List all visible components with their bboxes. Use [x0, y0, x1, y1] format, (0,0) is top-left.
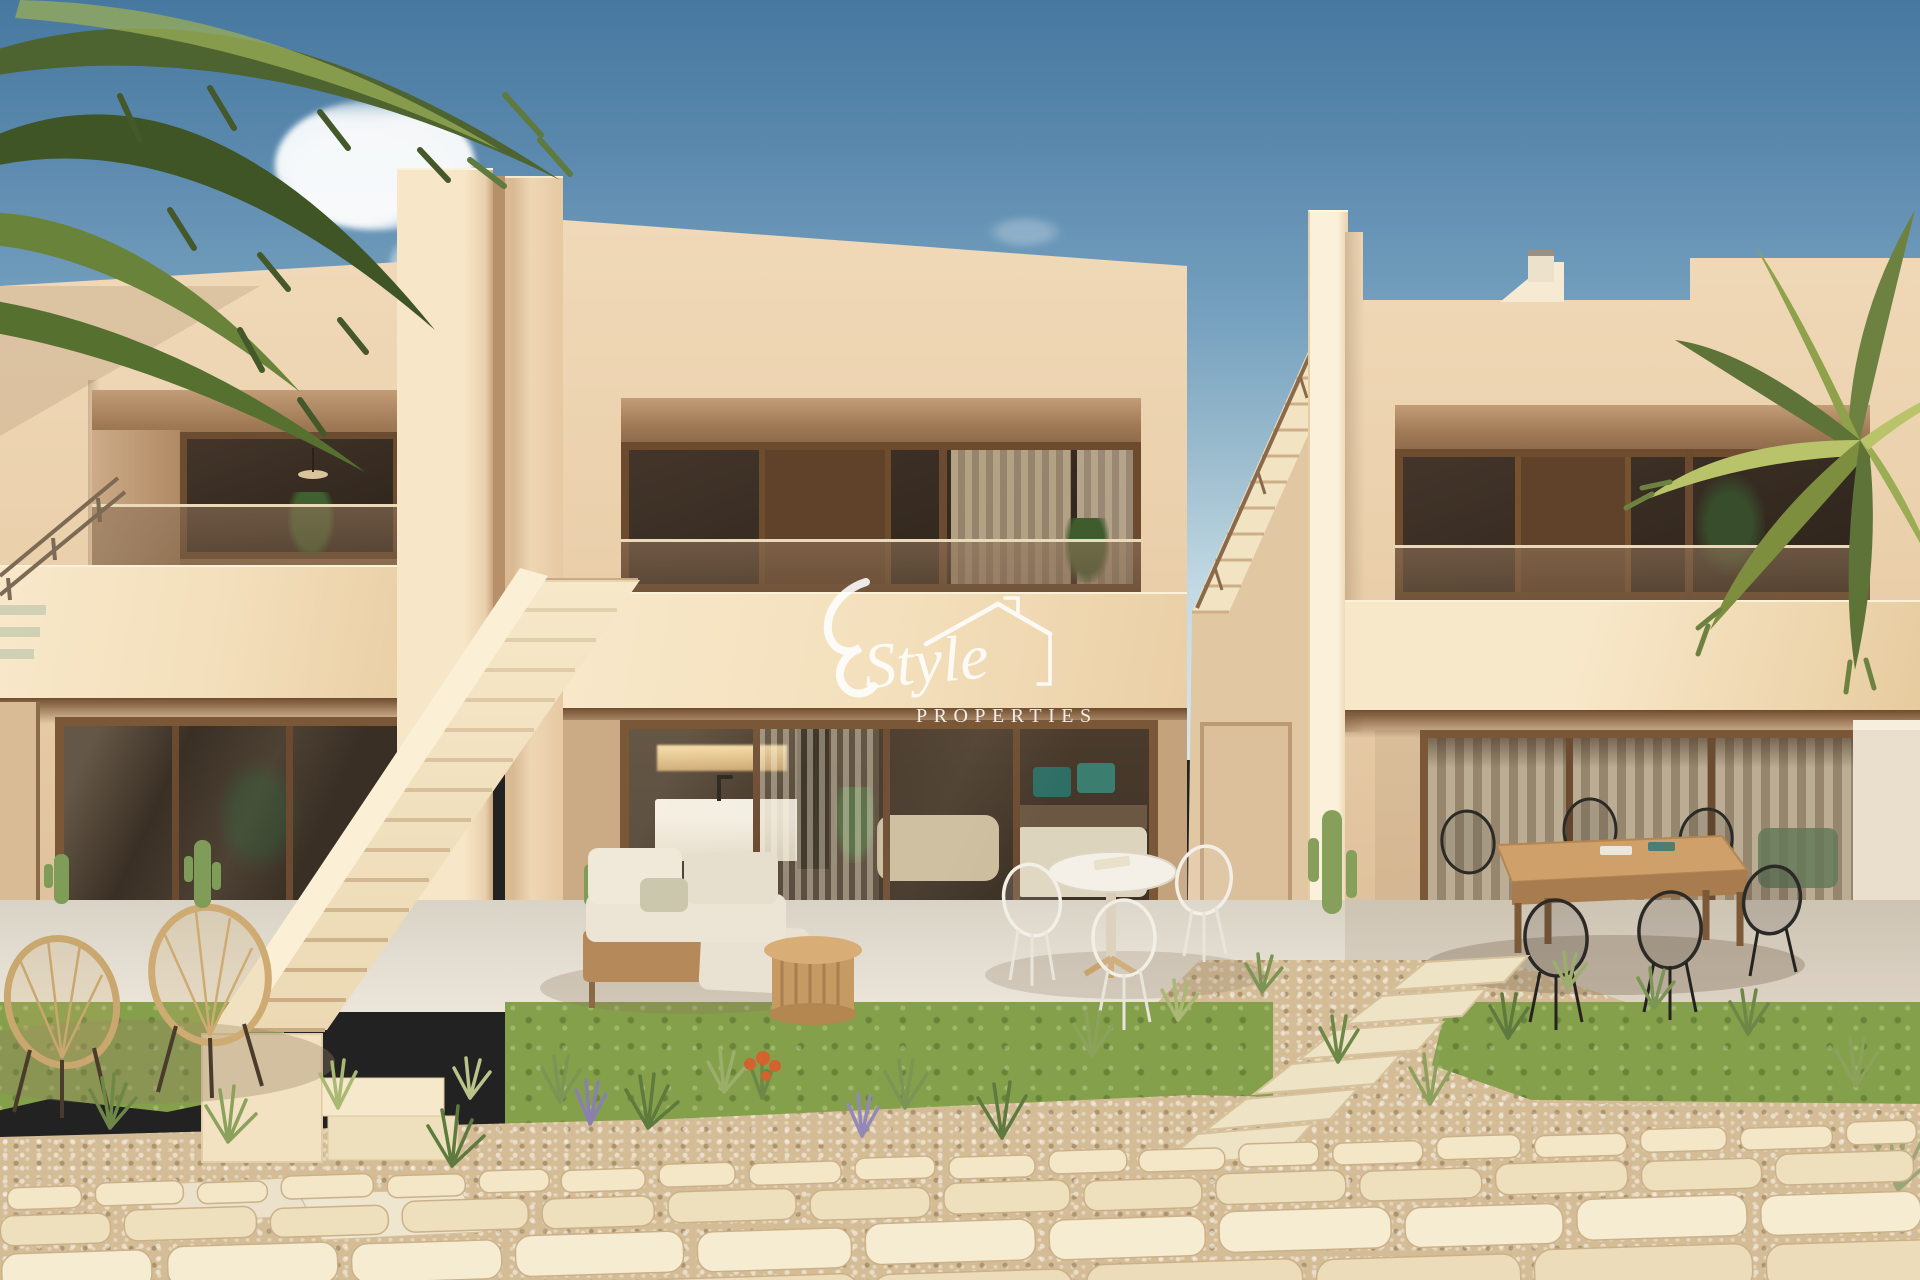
watermark-logo: Style PROPERTIES: [810, 572, 1110, 732]
property-render-photo: Style PROPERTIES: [0, 0, 1920, 1280]
watermark-caps-text: PROPERTIES: [916, 705, 1098, 727]
palm-frond: [0, 114, 435, 330]
palm-frond: [0, 300, 365, 472]
palm-leaflet-tips: [1626, 482, 1874, 692]
logo-house-wall: [1038, 634, 1050, 684]
watermark-script-text: Style: [861, 620, 991, 702]
palm-fronds: [1626, 210, 1920, 692]
palm-tree-right: [1560, 190, 1920, 790]
palm-fronds-left: [0, 0, 640, 520]
